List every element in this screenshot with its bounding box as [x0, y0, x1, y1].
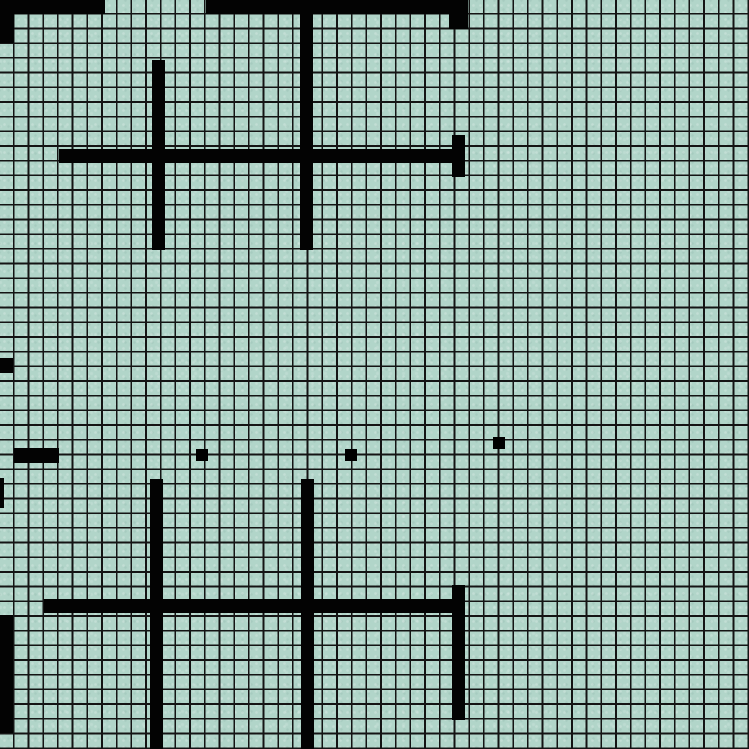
wall-left-mid-segment — [14, 448, 59, 463]
wall-top-edge-band-right — [206, 0, 468, 14]
tile-surface — [0, 0, 749, 749]
map-dot-1 — [196, 449, 208, 461]
wall-upper-cross-horizontal — [59, 149, 452, 163]
wall-lower-cross-main-vertical — [301, 479, 314, 749]
wall-lower-cross-left-vertical — [150, 479, 163, 749]
map-dot-3 — [493, 437, 505, 449]
wall-left-edge-bottom-strip — [0, 615, 13, 733]
wall-lower-cross-right-cap — [452, 585, 465, 720]
wall-top-right-notch — [449, 14, 468, 29]
game-map[interactable] — [0, 0, 749, 749]
map-dot-2 — [345, 449, 357, 461]
wall-left-edge-sliver — [0, 478, 4, 508]
wall-upper-cross-right-cap — [452, 135, 465, 177]
wall-left-edge-top-block — [0, 0, 14, 43]
wall-top-edge-band-left — [0, 0, 105, 14]
wall-lower-cross-horizontal — [44, 599, 465, 613]
wall-left-edge-mid-cell — [0, 358, 13, 373]
wall-upper-cross-main-vertical — [300, 0, 313, 250]
